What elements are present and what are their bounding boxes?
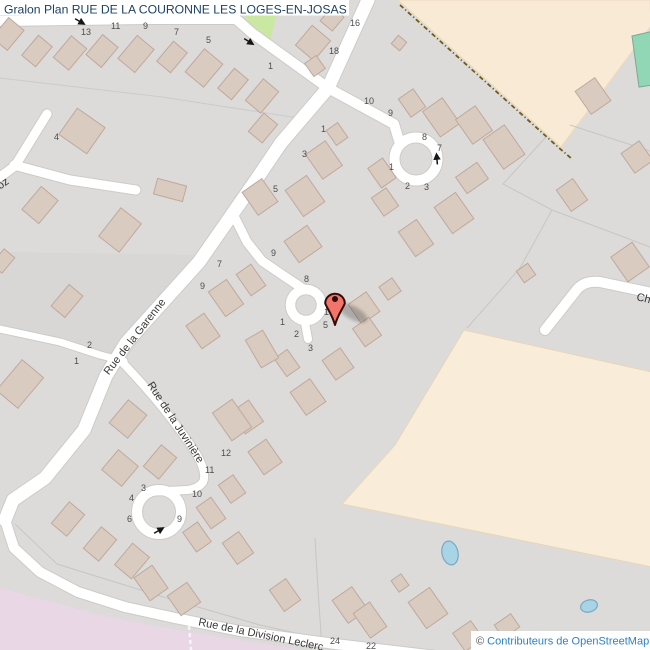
svg-text:12: 12 xyxy=(221,448,231,458)
svg-text:8: 8 xyxy=(422,132,427,142)
svg-text:8: 8 xyxy=(304,274,309,284)
svg-text:Gralon Plan RUE DE LA COURONNE: Gralon Plan RUE DE LA COURONNE LES LOGES… xyxy=(4,3,347,17)
svg-text:11: 11 xyxy=(111,21,120,31)
svg-text:3: 3 xyxy=(302,149,307,159)
svg-text:18: 18 xyxy=(329,46,339,56)
svg-text:1: 1 xyxy=(280,317,285,327)
svg-text:1: 1 xyxy=(74,356,79,366)
svg-text:1: 1 xyxy=(321,124,326,134)
svg-text:13: 13 xyxy=(81,27,91,37)
svg-text:9: 9 xyxy=(388,108,393,118)
svg-text:3: 3 xyxy=(424,182,429,192)
svg-text:6: 6 xyxy=(127,514,132,524)
svg-text:22: 22 xyxy=(366,641,376,650)
svg-text:7: 7 xyxy=(437,143,442,153)
svg-text:3: 3 xyxy=(308,343,313,353)
svg-text:16: 16 xyxy=(350,18,360,28)
svg-text:2: 2 xyxy=(87,340,92,350)
svg-text:11: 11 xyxy=(205,465,214,475)
svg-text:7: 7 xyxy=(174,27,179,37)
svg-text:5: 5 xyxy=(273,184,278,194)
svg-text:9: 9 xyxy=(200,281,205,291)
svg-text:© Contributeurs de OpenStreetM: © Contributeurs de OpenStreetMap xyxy=(476,636,649,648)
svg-text:9: 9 xyxy=(271,248,276,258)
svg-text:1: 1 xyxy=(389,162,394,172)
svg-text:4: 4 xyxy=(129,493,134,503)
svg-text:5: 5 xyxy=(323,320,328,330)
svg-text:3: 3 xyxy=(141,483,146,493)
svg-text:1: 1 xyxy=(268,61,273,71)
svg-text:10: 10 xyxy=(192,489,202,499)
svg-text:24: 24 xyxy=(330,636,340,646)
svg-text:7: 7 xyxy=(217,259,222,269)
svg-text:5: 5 xyxy=(206,35,211,45)
svg-text:4: 4 xyxy=(54,132,59,142)
svg-text:9: 9 xyxy=(143,21,148,31)
svg-text:2: 2 xyxy=(405,181,410,191)
svg-text:2: 2 xyxy=(294,329,299,339)
svg-text:10: 10 xyxy=(364,96,374,106)
svg-text:9: 9 xyxy=(177,514,182,524)
